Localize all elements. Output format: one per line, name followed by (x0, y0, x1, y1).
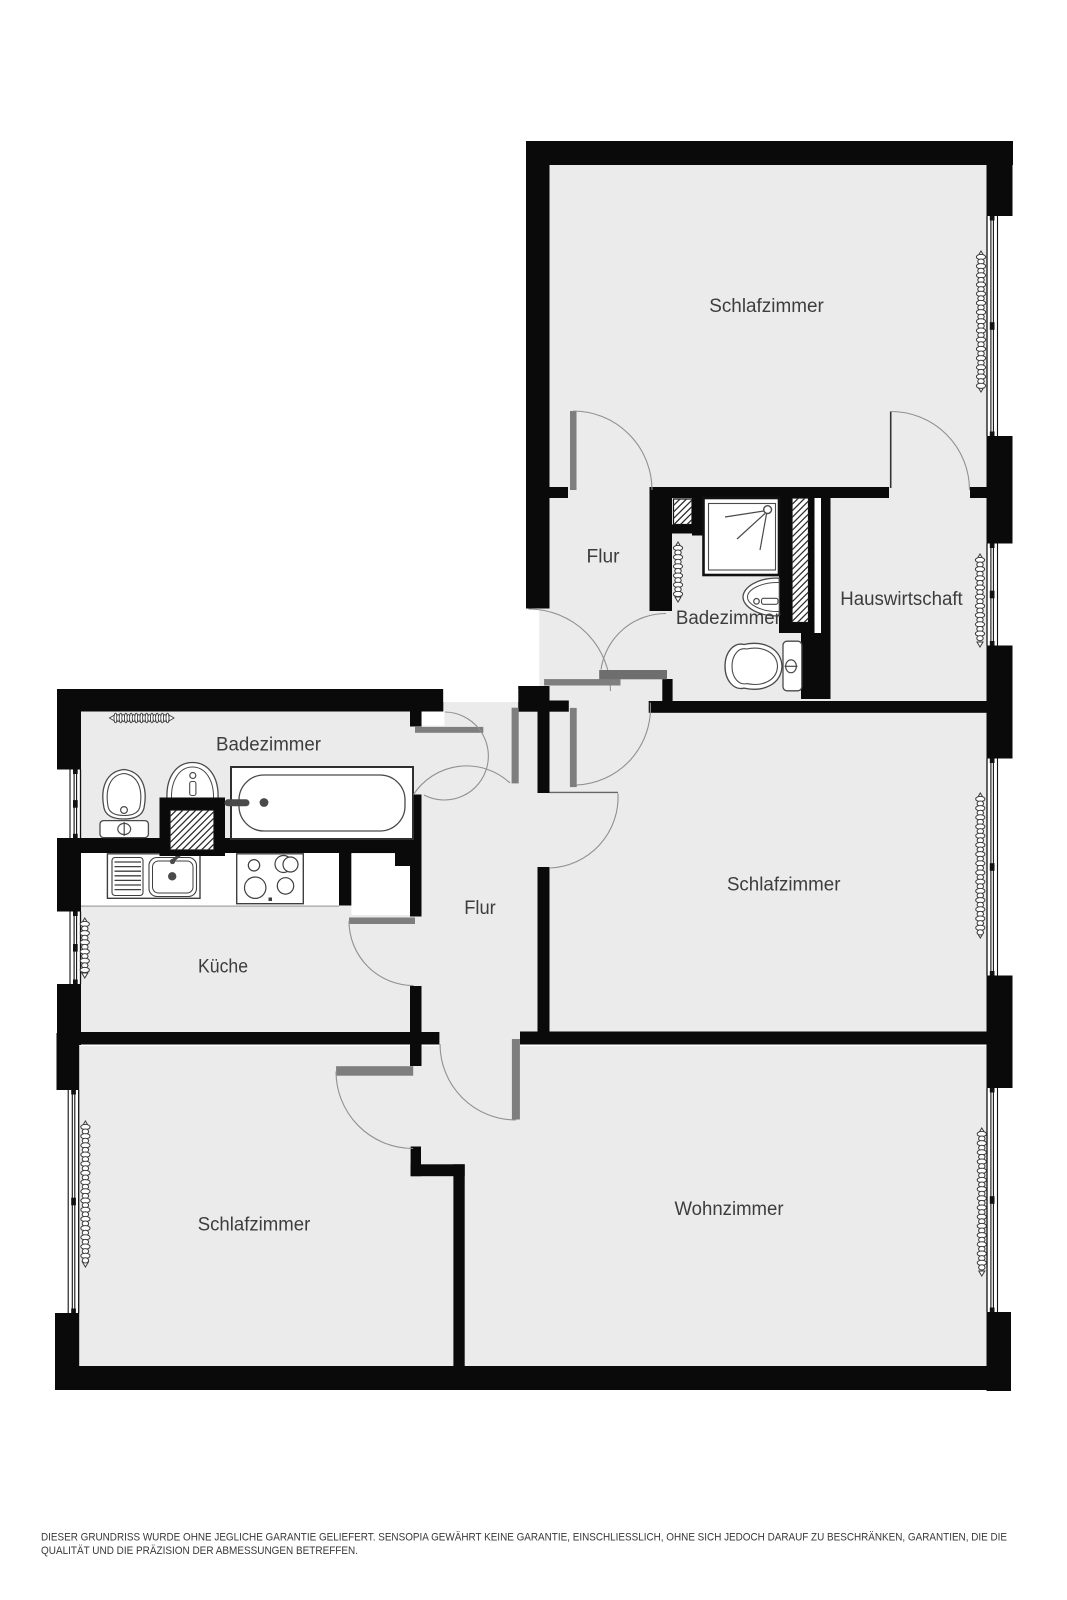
svg-text:DIESER GRUNDRISS WURDE OHNE JE: DIESER GRUNDRISS WURDE OHNE JEGLICHE GAR… (41, 1532, 1007, 1544)
svg-text:Schlafzimmer: Schlafzimmer (709, 296, 824, 317)
svg-text:Badezimmer: Badezimmer (676, 608, 782, 629)
svg-text:Küche: Küche (198, 957, 248, 978)
svg-text:Hauswirtschaft: Hauswirtschaft (840, 589, 963, 610)
svg-text:Wohnzimmer: Wohnzimmer (675, 1199, 785, 1220)
svg-text:Schlafzimmer: Schlafzimmer (727, 875, 841, 896)
svg-text:Flur: Flur (587, 547, 621, 568)
svg-text:Schlafzimmer: Schlafzimmer (198, 1215, 311, 1236)
svg-text:Badezimmer: Badezimmer (216, 735, 322, 756)
svg-text:QUALITÄT UND DIE PRÄZISION DER: QUALITÄT UND DIE PRÄZISION DER ABMESSUNG… (41, 1545, 358, 1557)
svg-text:Flur: Flur (464, 898, 496, 919)
